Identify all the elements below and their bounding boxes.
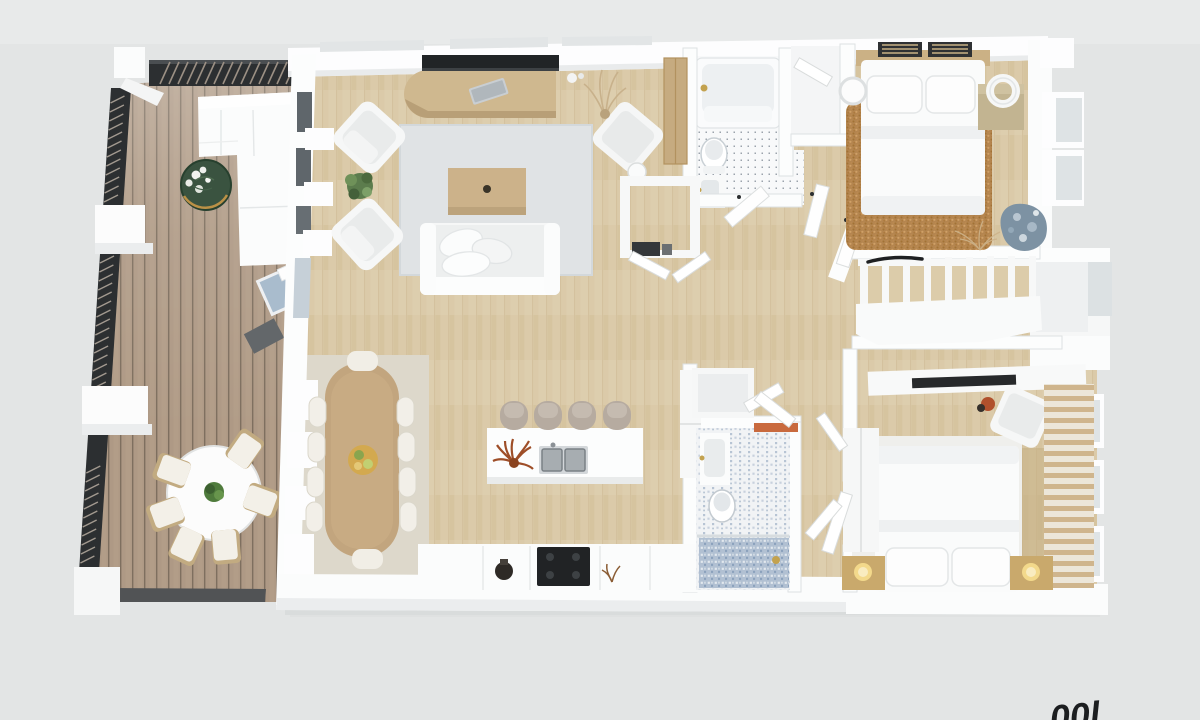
svg-text:00l: 00l <box>1048 693 1102 720</box>
